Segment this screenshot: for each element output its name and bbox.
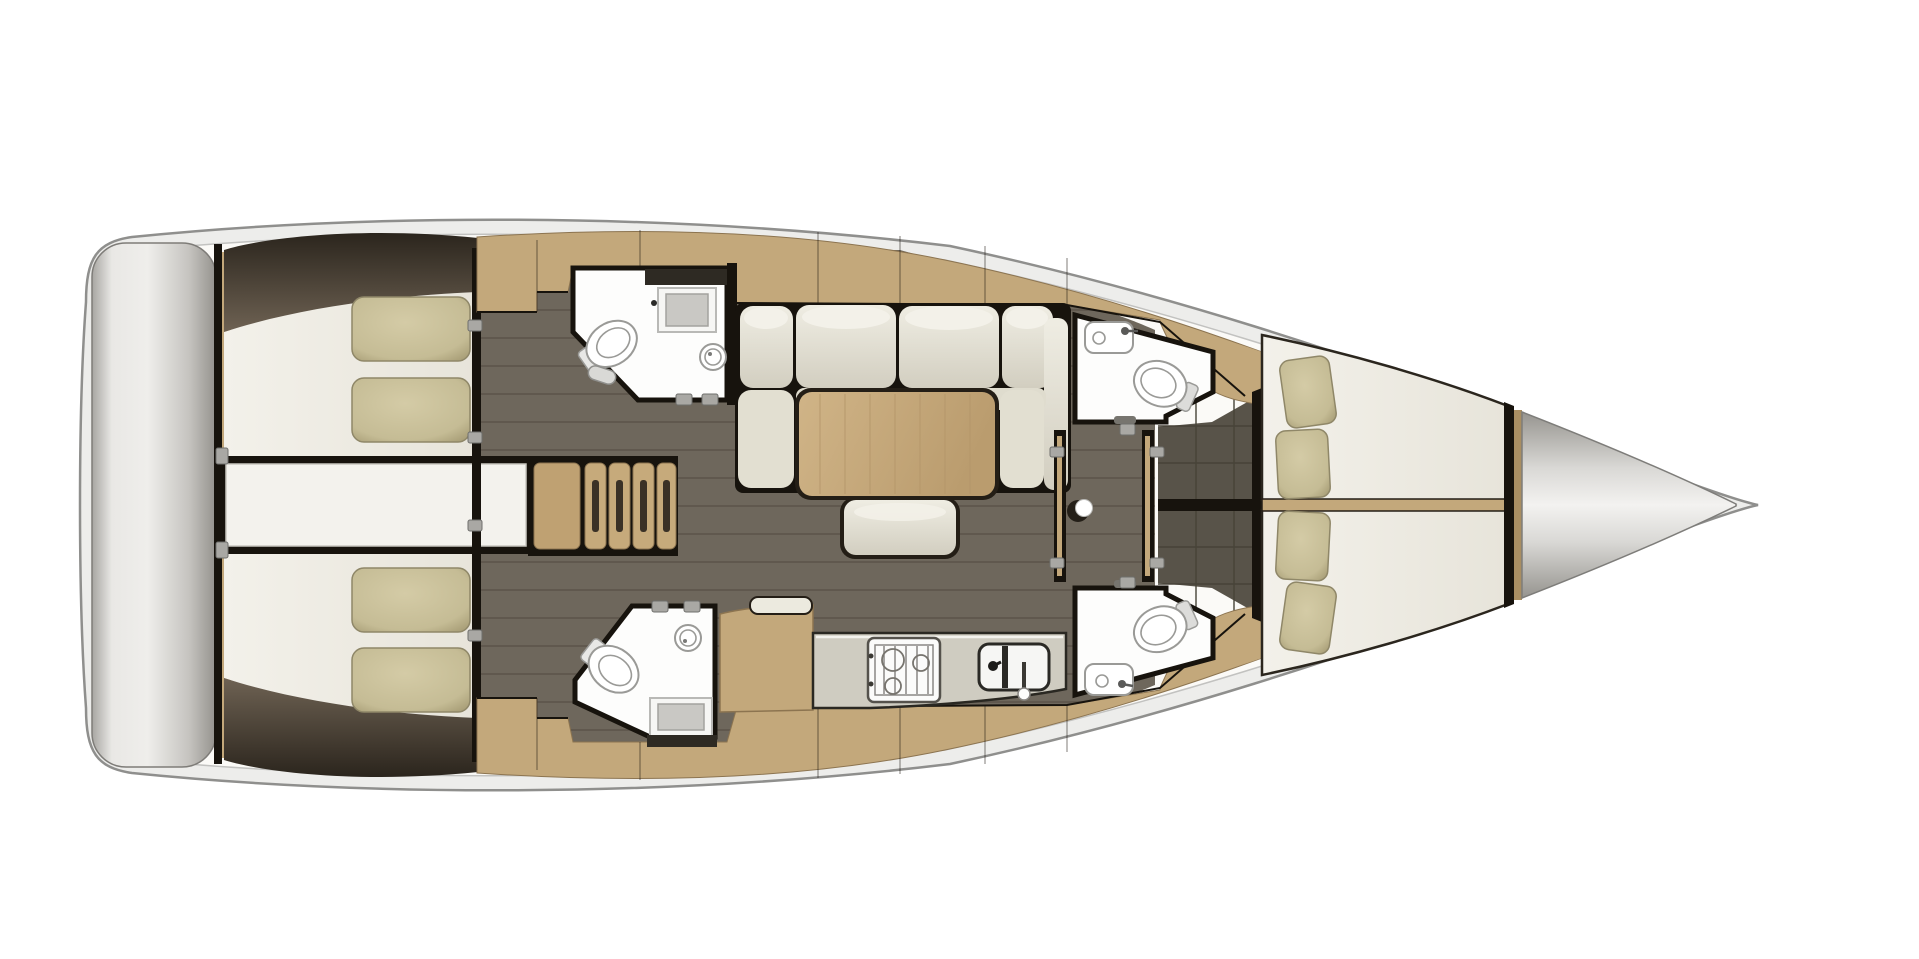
sink [1085, 664, 1133, 695]
pillow [352, 648, 470, 712]
transom-wall [214, 244, 222, 764]
galley-counter-endcap [750, 597, 812, 614]
sink [1085, 322, 1138, 353]
companionway-stairs [528, 456, 678, 556]
anchor-locker [1504, 402, 1736, 608]
pillow [1275, 511, 1330, 582]
round-sink [700, 344, 726, 370]
yacht-floorplan [0, 0, 1919, 959]
engine-hatch [222, 456, 530, 554]
pillow [352, 297, 470, 361]
pillow [1279, 581, 1338, 655]
mirror-cabinet [647, 735, 717, 747]
bow-trim [1514, 410, 1522, 600]
pillow [352, 378, 470, 442]
mirror-cabinet [645, 269, 727, 285]
aft-cabin-starboard [224, 552, 478, 777]
shower-mixer [1114, 416, 1136, 424]
anchor-cone [1522, 412, 1736, 598]
salon-table [795, 388, 999, 500]
galley-wood-cabinet [720, 605, 813, 712]
pillow [352, 568, 470, 632]
forward-floor [1158, 396, 1258, 614]
stern-platform [92, 243, 231, 767]
round-sink [675, 625, 701, 651]
stove [868, 638, 940, 702]
pillow [1275, 429, 1330, 500]
shower-pan [651, 288, 716, 332]
pillow [1279, 355, 1338, 429]
forward-cabin [1252, 335, 1508, 675]
vberth-center-trim [1262, 499, 1508, 511]
salon-bench [840, 497, 960, 559]
bow-bulkhead [1504, 402, 1514, 608]
floorplan-svg [0, 0, 1919, 959]
aft-cabin-port [224, 233, 478, 458]
shower-pan [650, 698, 712, 736]
forward-floor-centerline [1158, 499, 1258, 511]
bulkhead [1252, 388, 1262, 622]
